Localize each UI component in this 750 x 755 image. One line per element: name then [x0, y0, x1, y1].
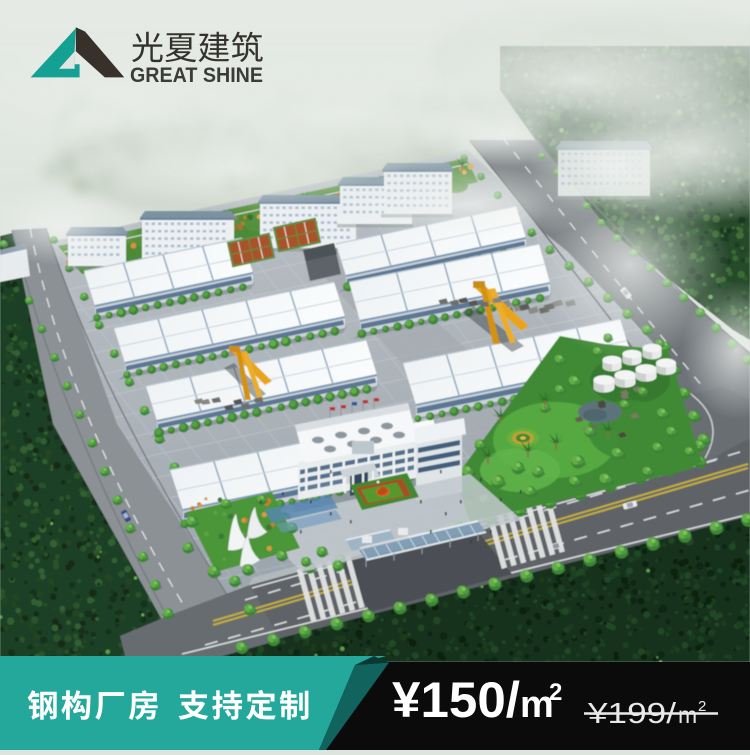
svg-text:GREAT SHINE: GREAT SHINE — [130, 64, 263, 87]
svg-text:¥150/: ¥150/ — [392, 672, 520, 728]
svg-text:2: 2 — [549, 679, 562, 706]
svg-text:m: m — [678, 702, 697, 728]
